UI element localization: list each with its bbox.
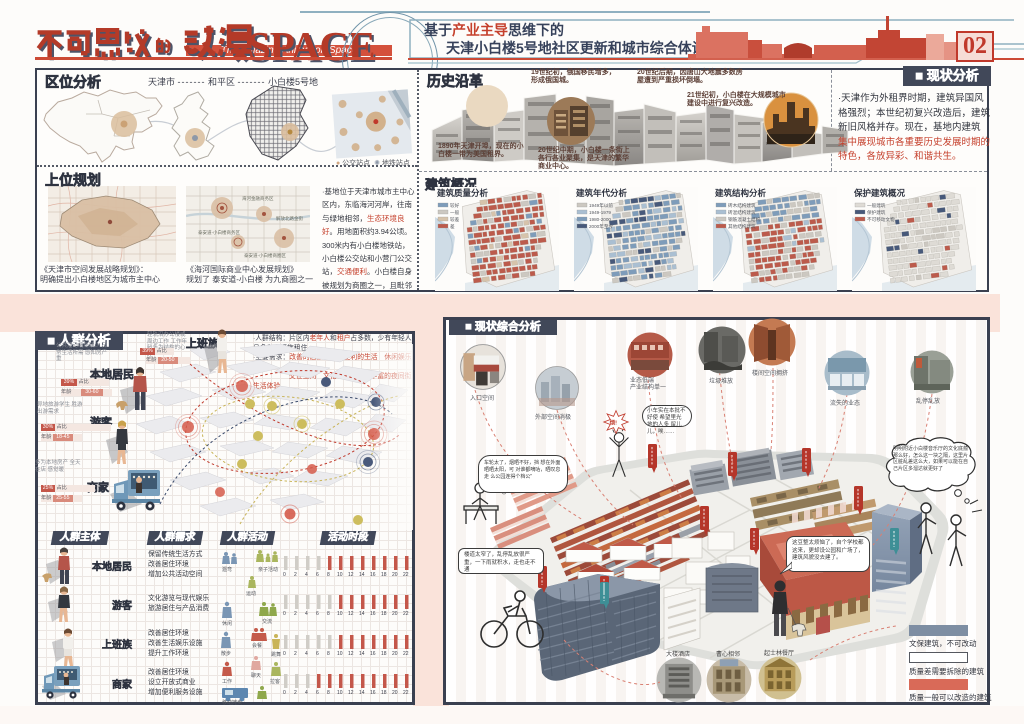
svg-text:10: 10 xyxy=(337,572,343,578)
svg-text:16: 16 xyxy=(370,651,376,657)
svg-text:散步: 散步 xyxy=(221,650,231,657)
svg-text:6: 6 xyxy=(316,611,319,617)
svg-text:6: 6 xyxy=(316,690,319,696)
svg-text:烦!: 烦! xyxy=(610,418,618,426)
svg-text:休闲: 休闲 xyxy=(222,620,232,627)
svg-text:保护建筑: 保护建筑 xyxy=(867,209,886,216)
svg-text:建筑结构分析: 建筑结构分析 xyxy=(714,188,767,198)
svg-text:跳舞: 跳舞 xyxy=(271,651,281,658)
svg-text:6: 6 xyxy=(316,651,319,657)
svg-text:较好: 较好 xyxy=(450,202,460,209)
svg-text:10: 10 xyxy=(337,651,343,657)
svg-text:2000年至今: 2000年至今 xyxy=(589,223,613,230)
svg-text:拉客: 拉客 xyxy=(270,678,280,685)
svg-text:1949-1979: 1949-1979 xyxy=(589,210,611,215)
svg-text:12: 12 xyxy=(348,690,354,696)
svg-text:20: 20 xyxy=(392,611,398,617)
svg-text:不可移动文物: 不可移动文物 xyxy=(867,216,895,223)
svg-text:1980-2000: 1980-2000 xyxy=(589,217,611,222)
svg-text:8: 8 xyxy=(327,690,330,696)
svg-text:18: 18 xyxy=(381,611,387,617)
svg-text:16: 16 xyxy=(370,690,376,696)
svg-text:亲子活动: 亲子活动 xyxy=(258,566,278,573)
svg-text:2: 2 xyxy=(294,690,297,696)
svg-text:22: 22 xyxy=(403,572,409,578)
svg-text:14: 14 xyxy=(359,690,365,696)
svg-text:其他结构建筑: 其他结构建筑 xyxy=(728,223,756,230)
svg-text:一般: 一般 xyxy=(450,209,460,216)
svg-text:22: 22 xyxy=(403,651,409,657)
svg-text:8: 8 xyxy=(327,611,330,617)
svg-text:钢筋混凝土结构: 钢筋混凝土结构 xyxy=(728,216,761,223)
svg-text:泰安道-小白楼商务区: 泰安道-小白楼商务区 xyxy=(198,229,240,236)
svg-text:4: 4 xyxy=(305,651,308,657)
svg-text:建筑质量分析: 建筑质量分析 xyxy=(436,188,489,198)
svg-text:12: 12 xyxy=(348,611,354,617)
svg-text:16: 16 xyxy=(370,611,376,617)
svg-text:海河金融商务区: 海河金融商务区 xyxy=(242,195,274,202)
svg-text:22: 22 xyxy=(403,611,409,617)
svg-text:差: 差 xyxy=(450,223,455,229)
svg-text:16: 16 xyxy=(370,572,376,578)
svg-text:工作: 工作 xyxy=(222,678,232,685)
svg-text:砖混结构建筑: 砖混结构建筑 xyxy=(728,209,756,216)
svg-text:4: 4 xyxy=(305,572,308,578)
svg-text:0: 0 xyxy=(283,690,286,696)
svg-text:遛弯: 遛弯 xyxy=(222,566,232,573)
svg-text:运动: 运动 xyxy=(246,590,256,597)
svg-text:18: 18 xyxy=(381,572,387,578)
svg-text:18: 18 xyxy=(381,690,387,696)
svg-text:解放北路金街: 解放北路金街 xyxy=(276,215,303,222)
svg-text:砖木结构建筑: 砖木结构建筑 xyxy=(728,202,756,209)
svg-text:4: 4 xyxy=(305,690,308,696)
svg-text:20: 20 xyxy=(392,572,398,578)
svg-text:0: 0 xyxy=(283,611,286,617)
svg-text:聊天: 聊天 xyxy=(251,672,261,679)
svg-text:会餐: 会餐 xyxy=(252,642,262,649)
svg-text:交流: 交流 xyxy=(262,618,272,625)
svg-text:20: 20 xyxy=(392,651,398,657)
svg-text:10: 10 xyxy=(337,690,343,696)
svg-text:6: 6 xyxy=(316,572,319,578)
svg-text:0: 0 xyxy=(283,651,286,657)
svg-text:0: 0 xyxy=(283,572,286,578)
svg-text:14: 14 xyxy=(359,572,365,578)
svg-text:8: 8 xyxy=(327,651,330,657)
svg-text:8: 8 xyxy=(327,572,330,578)
svg-text:建筑年代分析: 建筑年代分析 xyxy=(575,188,628,198)
svg-text:较差: 较差 xyxy=(450,216,460,223)
svg-text:14: 14 xyxy=(359,651,365,657)
svg-text:1949年以前: 1949年以前 xyxy=(589,202,613,209)
svg-text:一般建筑: 一般建筑 xyxy=(867,202,886,209)
svg-text:18: 18 xyxy=(381,651,387,657)
svg-text:12: 12 xyxy=(348,651,354,657)
svg-text:12: 12 xyxy=(348,572,354,578)
svg-text:22: 22 xyxy=(403,690,409,696)
svg-text:泰安道-小白楼商圈区: 泰安道-小白楼商圈区 xyxy=(244,252,286,259)
svg-text:保护建筑概况: 保护建筑概况 xyxy=(853,188,906,198)
svg-text:4: 4 xyxy=(305,611,308,617)
svg-text:2: 2 xyxy=(294,651,297,657)
svg-text:10: 10 xyxy=(337,611,343,617)
svg-text:2: 2 xyxy=(294,611,297,617)
svg-text:2: 2 xyxy=(294,572,297,578)
svg-text:14: 14 xyxy=(359,611,365,617)
svg-text:20: 20 xyxy=(392,690,398,696)
